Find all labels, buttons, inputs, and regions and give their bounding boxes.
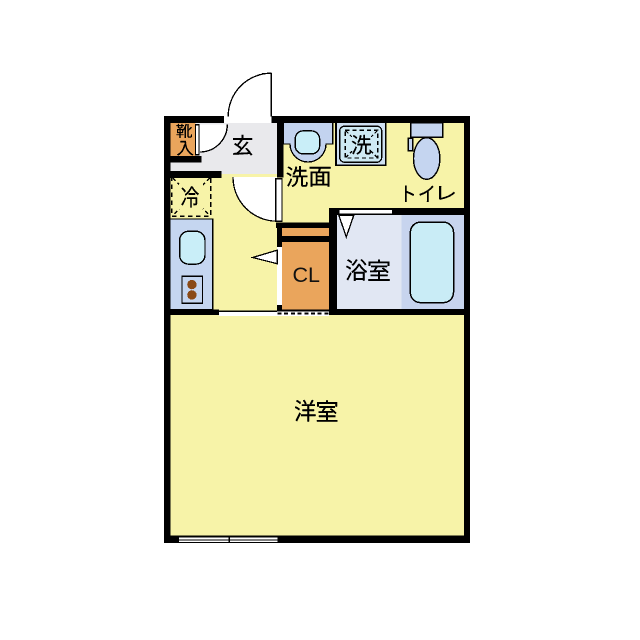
svg-text:CL: CL — [292, 263, 320, 287]
